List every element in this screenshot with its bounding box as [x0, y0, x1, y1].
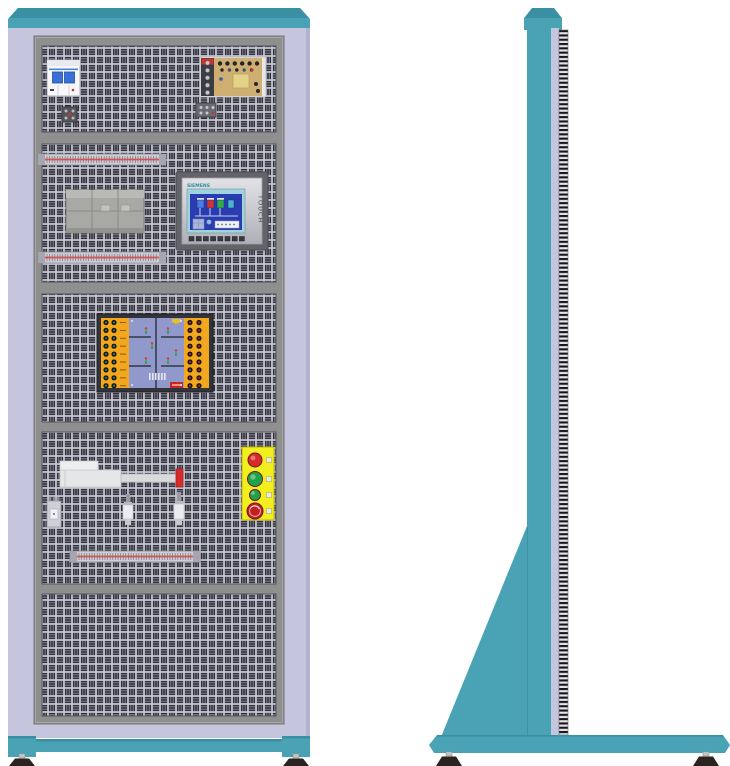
green-pushbutton-small[interactable] [250, 490, 261, 501]
cylinder-tip [176, 469, 183, 487]
body-edge-shade [306, 28, 310, 738]
red-pushbutton[interactable] [248, 453, 262, 467]
strip-marker-line [77, 556, 193, 558]
plc-module [66, 190, 144, 233]
side-base [429, 735, 730, 753]
circuit-breaker[interactable] [47, 60, 80, 96]
traffic-training-board [97, 314, 213, 392]
leveling-foot [283, 759, 309, 766]
side-top-cap [524, 8, 562, 30]
strip-end-cap [70, 551, 77, 562]
strip-end-cap [38, 154, 45, 165]
green-pushbutton[interactable] [248, 472, 263, 487]
breaker-indicator [72, 89, 75, 92]
button-label-tag [267, 477, 272, 482]
front-feet [9, 754, 309, 766]
strip-end-cap [159, 154, 166, 165]
hmi-touch-text: TOUCH [257, 194, 265, 223]
connector-block-left [62, 107, 77, 122]
top-cap [8, 8, 310, 30]
side-column [527, 28, 551, 737]
strip-end-cap [159, 252, 166, 263]
cylinder-rod [121, 474, 178, 482]
side-gusset [441, 526, 527, 737]
button-label-tag [267, 493, 272, 498]
hmi-function-key[interactable] [211, 237, 216, 242]
hmi-function-key[interactable] [239, 237, 244, 242]
terminal-strip-bottom [38, 252, 166, 263]
strip-end-cap [38, 252, 45, 263]
terminal-strip-top [38, 154, 166, 165]
leveling-foot [9, 759, 35, 766]
front-base [8, 736, 310, 757]
side-lavender-strip [551, 28, 559, 737]
strip-marker-line [45, 159, 159, 161]
hmi-function-key[interactable] [218, 237, 223, 242]
strip-marker-line [45, 257, 159, 259]
button-label-tag [267, 458, 272, 463]
side-panel-edge [559, 30, 568, 735]
breaker-toggle[interactable] [65, 72, 75, 83]
hmi-brand-text: SIEMENS [187, 183, 210, 189]
leveling-foot [436, 757, 462, 766]
side-view [429, 8, 730, 766]
hmi-function-key[interactable] [225, 237, 230, 242]
leveling-foot [693, 757, 719, 766]
connector-block-right [196, 103, 216, 117]
hmi-function-key[interactable] [196, 237, 201, 242]
side-feet [436, 752, 719, 766]
terminal-strip-lower [70, 551, 200, 562]
front-view: SIEMENS TOUCH [8, 8, 310, 766]
drawing-surface: SIEMENS TOUCH [0, 0, 730, 766]
hmi-function-key[interactable] [232, 237, 237, 242]
button-label-tag [267, 509, 272, 514]
cabinet-illustration: SIEMENS TOUCH [0, 0, 730, 766]
strip-end-cap [193, 551, 200, 562]
hmi-panel: SIEMENS TOUCH [176, 172, 268, 250]
hmi-function-key[interactable] [189, 237, 194, 242]
hmi-function-key[interactable] [203, 237, 208, 242]
switching-power-supply [200, 57, 266, 97]
panel-section-5 [42, 594, 276, 716]
pushbutton-panel [242, 447, 274, 520]
psu-transformer [233, 74, 249, 88]
relay-module [47, 497, 61, 527]
breaker-toggle[interactable] [53, 72, 63, 83]
